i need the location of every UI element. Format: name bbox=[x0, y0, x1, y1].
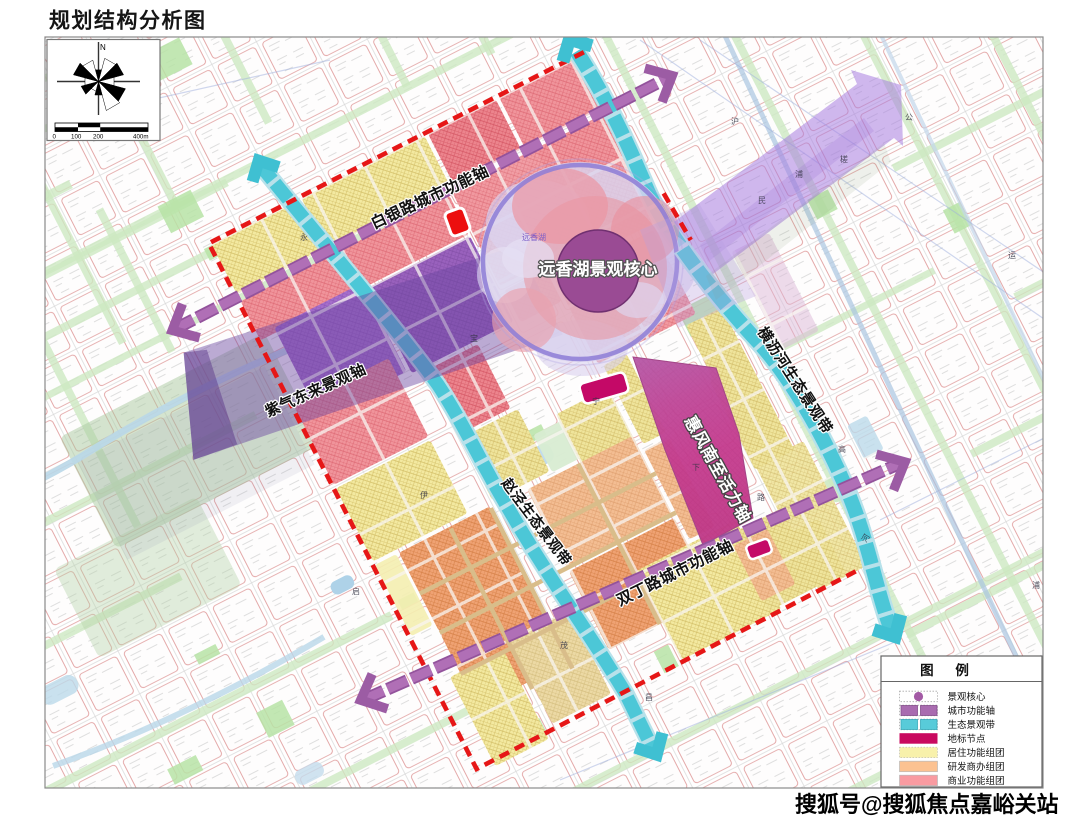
svg-text:永: 永 bbox=[300, 232, 308, 242]
svg-text:昌: 昌 bbox=[645, 693, 653, 702]
svg-text:N: N bbox=[100, 43, 106, 52]
svg-text:200: 200 bbox=[93, 134, 104, 141]
svg-text:城市功能轴: 城市功能轴 bbox=[948, 705, 996, 717]
svg-text:规划结构分析图: 规划结构分析图 bbox=[49, 9, 207, 33]
svg-text:居住功能组团: 居住功能组团 bbox=[948, 747, 1005, 759]
svg-text:公: 公 bbox=[905, 113, 913, 122]
svg-text:400m: 400m bbox=[133, 134, 148, 141]
svg-text:伊: 伊 bbox=[420, 490, 428, 500]
svg-text:启: 启 bbox=[352, 586, 360, 596]
svg-text:运: 运 bbox=[1008, 251, 1016, 260]
svg-text:0: 0 bbox=[53, 134, 57, 141]
svg-text:地标节点: 地标节点 bbox=[948, 733, 987, 745]
svg-text:远香湖: 远香湖 bbox=[522, 232, 546, 242]
svg-text:高: 高 bbox=[838, 444, 846, 454]
svg-text:民: 民 bbox=[758, 196, 766, 205]
svg-text:生态景观带: 生态景观带 bbox=[948, 719, 996, 731]
svg-text:搜狐号@搜狐焦点嘉峪关站: 搜狐号@搜狐焦点嘉峪关站 bbox=[795, 792, 1058, 817]
svg-text:研发商办组团: 研发商办组团 bbox=[948, 761, 1005, 773]
svg-text:景观核心: 景观核心 bbox=[948, 691, 987, 703]
svg-text:浦: 浦 bbox=[1032, 580, 1040, 590]
svg-text:浦: 浦 bbox=[795, 169, 803, 179]
svg-text:槎: 槎 bbox=[840, 154, 848, 164]
svg-text:商业功能组团: 商业功能组团 bbox=[948, 775, 1005, 787]
svg-text:图 例: 图 例 bbox=[920, 662, 978, 678]
svg-text:远香湖景观核心: 远香湖景观核心 bbox=[539, 259, 658, 279]
svg-text:宁: 宁 bbox=[592, 396, 600, 406]
svg-text:路: 路 bbox=[757, 492, 765, 502]
svg-text:100: 100 bbox=[71, 134, 82, 141]
svg-text:宝: 宝 bbox=[470, 333, 478, 343]
svg-text:茂: 茂 bbox=[560, 640, 568, 650]
svg-text:下: 下 bbox=[692, 463, 700, 472]
svg-text:沪: 沪 bbox=[731, 116, 739, 126]
